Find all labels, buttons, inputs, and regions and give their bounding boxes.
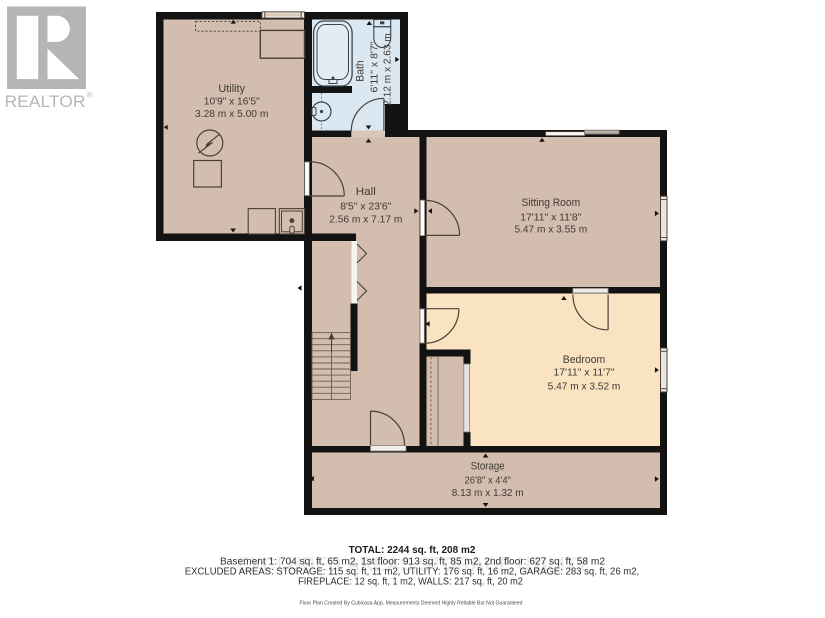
svg-text:6'11" x 8'7": 6'11" x 8'7" [370, 41, 381, 92]
svg-text:10'9" x 16'5": 10'9" x 16'5" [204, 97, 260, 108]
svg-text:3.28 m x 5.00 m: 3.28 m x 5.00 m [195, 109, 268, 120]
svg-text:8'5" x 23'6": 8'5" x 23'6" [340, 202, 391, 213]
svg-text:FIREPLACE: 12 sq. ft, 1 m2, WA: FIREPLACE: 12 sq. ft, 1 m2, WALLS: 217 s… [298, 577, 523, 588]
svg-text:Storage: Storage [471, 461, 505, 473]
svg-text:5.47 m x 3.55 m: 5.47 m x 3.55 m [514, 224, 587, 235]
svg-text:Utility: Utility [218, 83, 245, 95]
svg-text:17'11" x 11'8": 17'11" x 11'8" [520, 213, 581, 224]
svg-text:2.56 m x 7.17 m: 2.56 m x 7.17 m [329, 215, 402, 226]
svg-text:8.13 m x 1.32 m: 8.13 m x 1.32 m [452, 488, 524, 499]
svg-text:Floor Plan Created By Cubicasa: Floor Plan Created By Cubicasa App. Meas… [300, 600, 523, 606]
svg-text:REALTOR: REALTOR [5, 93, 86, 111]
svg-text:Bath: Bath [354, 60, 366, 82]
svg-text:17'11" x 11'7": 17'11" x 11'7" [554, 368, 615, 379]
svg-text:Bedroom: Bedroom [563, 354, 606, 366]
svg-text:Sitting Room: Sitting Room [521, 197, 580, 209]
svg-text:5.47 m x 3.52 m: 5.47 m x 3.52 m [548, 381, 621, 392]
svg-text:26'8" x 4'4": 26'8" x 4'4" [465, 476, 512, 487]
svg-text:Hall: Hall [356, 186, 376, 198]
svg-text:TOTAL: 2244 sq. ft, 208 m2: TOTAL: 2244 sq. ft, 208 m2 [349, 544, 476, 556]
svg-text:®: ® [87, 91, 93, 100]
svg-text:2.12 m x 2.63 m: 2.12 m x 2.63 m [382, 33, 393, 105]
